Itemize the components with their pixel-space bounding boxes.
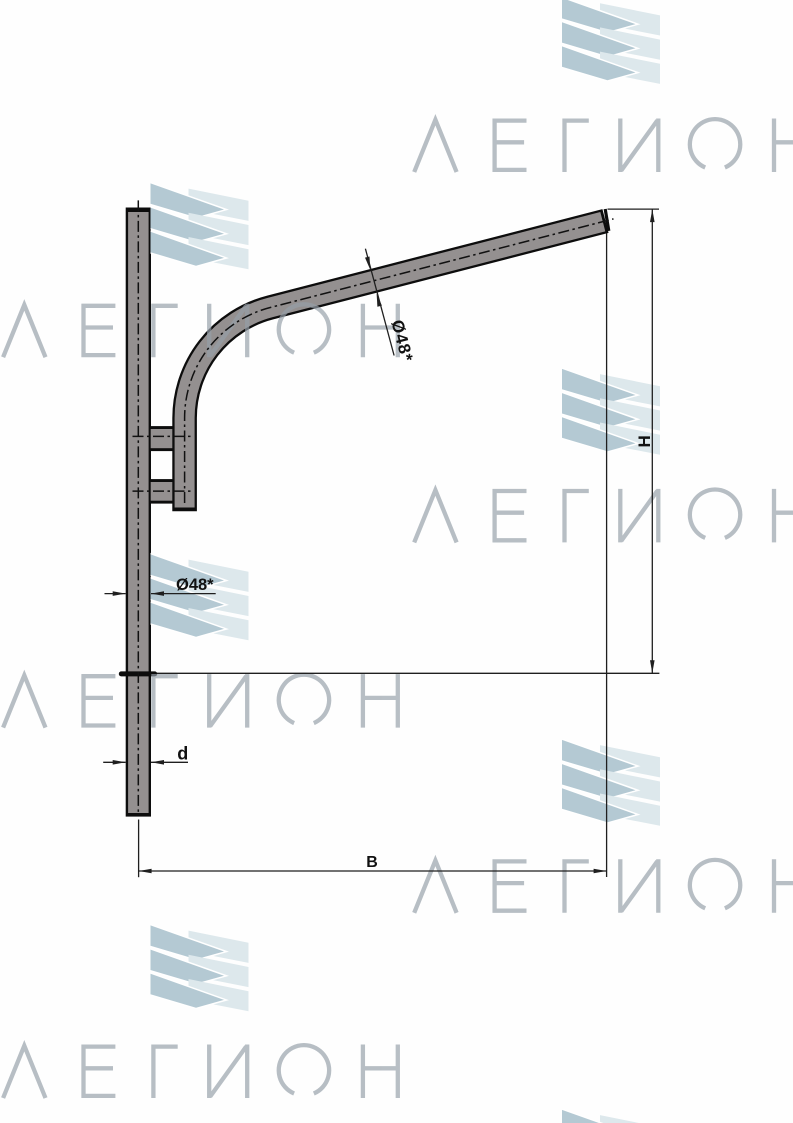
svg-text:d: d [177,744,188,764]
svg-text:H: H [635,435,654,447]
svg-text:Ø48*: Ø48* [176,576,214,594]
svg-text:B: B [366,854,378,871]
